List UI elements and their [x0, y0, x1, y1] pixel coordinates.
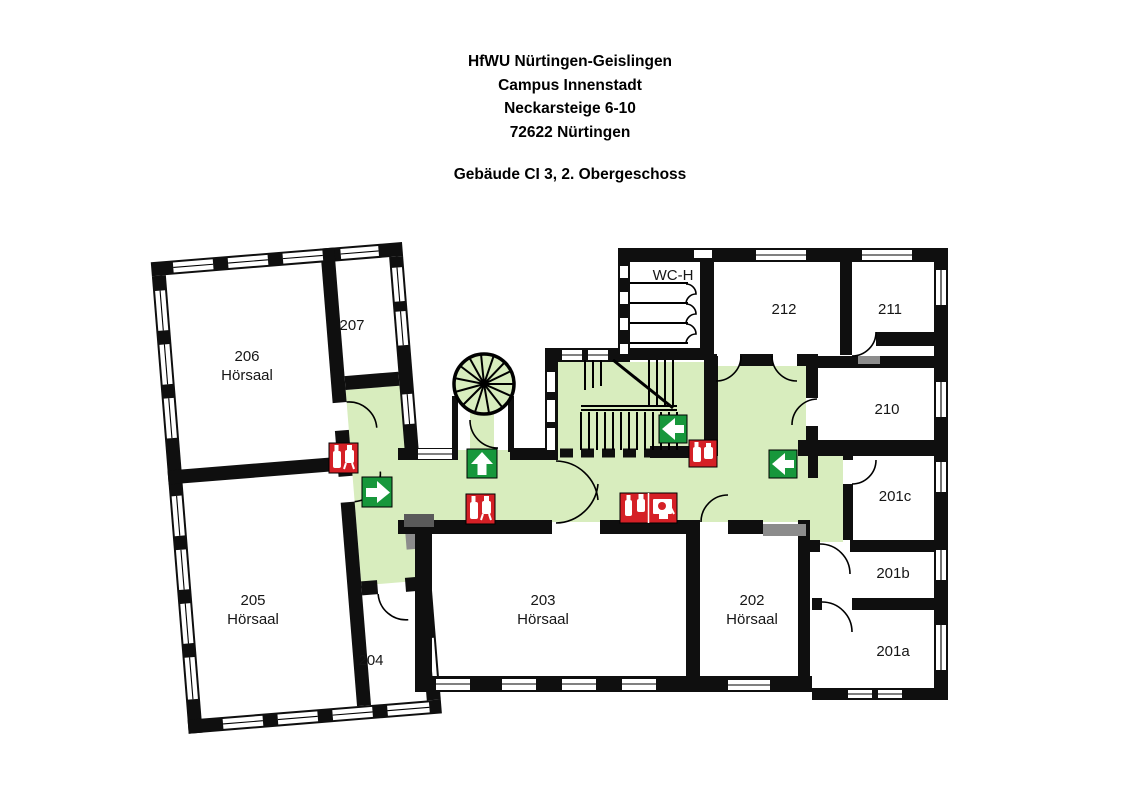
floor-plan-drawing: 206 Hörsaal 207 205 Hörsaal 204 203 Hörs…: [0, 0, 1123, 794]
fire-extinguisher-icon-stair: [689, 440, 717, 467]
room-label-207: 207: [339, 317, 364, 334]
glazed-partition: [763, 524, 806, 536]
exit-arrow-right-icon: [362, 477, 392, 507]
bench: [404, 514, 434, 527]
room-label-201b: 201b: [876, 565, 909, 582]
room-label-205: 205: [240, 592, 265, 609]
fire-extinguisher-icon-corridor: [466, 494, 495, 524]
room-sublabel-203: Hörsaal: [517, 611, 569, 628]
room-sublabel-205: Hörsaal: [227, 611, 279, 628]
room-label-201a: 201a: [876, 643, 910, 660]
fire-extinguisher-icon-wing: [329, 443, 358, 473]
door-arc-211: [852, 332, 876, 356]
door-arc-201c: [852, 460, 876, 484]
room-label-206: 206: [234, 348, 259, 365]
exit-arrow-left-stair-icon: [659, 415, 687, 443]
room-sublabel-206: Hörsaal: [221, 367, 273, 384]
fire-extinguisher-hose-reel-icon: [620, 493, 677, 523]
room-label-203: 203: [530, 592, 555, 609]
door-arc-201a: [822, 602, 852, 632]
spiral-staircase: [452, 354, 514, 452]
room-label-202: 202: [739, 592, 764, 609]
exit-arrow-up-icon: [467, 449, 497, 478]
door-arc-201b: [820, 544, 850, 574]
door-arc-204: [378, 592, 408, 622]
glazed-partition-small: [858, 356, 880, 364]
room-label-201c: 201c: [879, 488, 912, 505]
room-label-211: 211: [878, 301, 902, 318]
room-label-wc: WC-H: [653, 267, 694, 284]
evacuation-floor-plan-page: HfWU Nürtingen-Geislingen Campus Innenst…: [0, 0, 1123, 794]
room-sublabel-202: Hörsaal: [726, 611, 778, 628]
exit-arrow-left-corridor-icon: [769, 450, 797, 478]
room-label-210: 210: [874, 401, 899, 418]
north-corridor-area: [715, 366, 806, 452]
room-label-212: 212: [771, 301, 796, 318]
wc-stalls: [630, 283, 696, 344]
room-label-204: 204: [358, 652, 383, 669]
